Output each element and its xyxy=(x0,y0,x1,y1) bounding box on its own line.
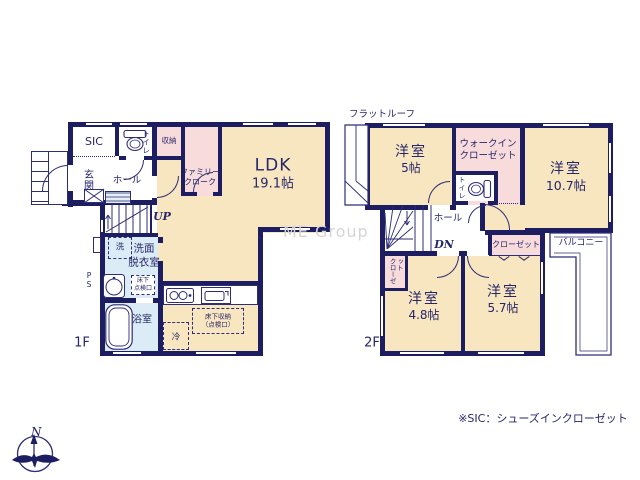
floor1-label: 1F xyxy=(74,336,90,353)
room-hall1-label: ホール xyxy=(113,175,142,187)
window xyxy=(400,351,444,356)
room-storage-label: 収納 xyxy=(162,136,177,146)
flat-roof xyxy=(344,123,370,207)
sink-icon xyxy=(201,287,231,304)
washbasin-icon xyxy=(103,274,125,298)
room-toilet2-label: トイレ xyxy=(457,176,467,200)
floor-plan: SIC トイレ 収納 ファミリークローク LDK19.1帖 玄関 ホール UP … xyxy=(0,0,640,480)
wall xyxy=(380,251,437,256)
wall xyxy=(450,205,456,210)
wall xyxy=(213,192,222,196)
wall xyxy=(452,171,498,175)
wall xyxy=(405,256,408,290)
room-sic-label: SIC xyxy=(85,135,103,149)
entrance-mat xyxy=(105,191,131,204)
window xyxy=(608,143,613,173)
window xyxy=(543,123,589,128)
room-ldk-fill xyxy=(185,196,222,233)
genkan-step-x xyxy=(84,189,104,203)
window xyxy=(288,122,316,127)
bathtub-icon xyxy=(105,304,133,350)
stairs-down-label: DN xyxy=(434,238,454,252)
wall xyxy=(115,127,119,156)
window xyxy=(478,351,524,356)
wall xyxy=(105,298,136,303)
stairs-down xyxy=(385,205,435,251)
balcony-outline xyxy=(549,231,615,357)
closet-right-label: クローゼット xyxy=(492,240,540,250)
window xyxy=(380,296,385,336)
room-ldk-label: LDK19.1帖 xyxy=(252,155,294,194)
wall xyxy=(144,156,152,160)
wall xyxy=(152,198,157,205)
underfloor-hatch-label: 床下点検口 xyxy=(134,277,152,293)
wall xyxy=(452,171,456,205)
ps-label: PS xyxy=(85,271,94,289)
closet-left-label: クローゼット xyxy=(388,258,402,289)
room-107j-label: 洋室10.7帖 xyxy=(546,160,586,194)
washer-label: 洗 xyxy=(116,242,125,253)
wall xyxy=(461,256,465,351)
open-boundary-dotted xyxy=(496,203,518,204)
room-48j-label: 洋室4.8帖 xyxy=(408,290,440,324)
flat-roof-label: フラットルーフ xyxy=(349,109,415,121)
window xyxy=(196,351,236,356)
room-toilet1-label: トイレ xyxy=(141,129,152,155)
wall xyxy=(152,160,157,176)
room-5j-label: 洋室5帖 xyxy=(395,143,427,177)
room-57j-label: 洋室5.7帖 xyxy=(487,283,519,317)
underfloor-storage-label: 床下収納（点検口） xyxy=(202,313,235,330)
footnote: ※SIC：シューズインクローゼット xyxy=(458,412,628,426)
room-genkan-label: 玄関 xyxy=(80,169,95,191)
bifold-door-mark xyxy=(499,256,509,263)
wall xyxy=(68,122,73,165)
window xyxy=(86,122,112,127)
hall2-label: ホール xyxy=(434,213,463,225)
room-washroom-label: 洗面脱衣室 xyxy=(128,242,160,269)
sic-boundary-dotted xyxy=(73,156,115,157)
window xyxy=(383,123,425,128)
window xyxy=(120,122,147,127)
stove-icon xyxy=(166,288,194,303)
wall xyxy=(520,123,525,205)
wall xyxy=(494,171,498,205)
room-bath-label: 浴室 xyxy=(132,314,152,327)
bifold-door-mark xyxy=(519,256,529,263)
balcony-label: バルコニー xyxy=(559,238,604,250)
wall xyxy=(258,227,263,356)
compass-icon: N xyxy=(8,414,66,474)
room-family-cloak-label: ファミリークローク xyxy=(180,168,220,189)
stairs-up xyxy=(104,205,152,233)
wall xyxy=(485,230,545,235)
wall xyxy=(181,192,197,196)
wall xyxy=(325,122,330,232)
ps-niche xyxy=(93,237,101,253)
window xyxy=(243,122,273,127)
room-wic-label: ウォークインクローゼット xyxy=(459,139,516,164)
window xyxy=(540,262,545,294)
compass-north-label: N xyxy=(30,425,42,439)
watermark: ME Group xyxy=(283,222,369,241)
toilet-icon xyxy=(466,179,492,199)
fridge-label: 冷 xyxy=(172,332,181,343)
window xyxy=(608,196,613,222)
wall xyxy=(452,201,468,205)
window xyxy=(113,351,141,356)
floor2-label: 2F xyxy=(364,336,380,353)
stairs-up-label: UP xyxy=(153,210,171,224)
